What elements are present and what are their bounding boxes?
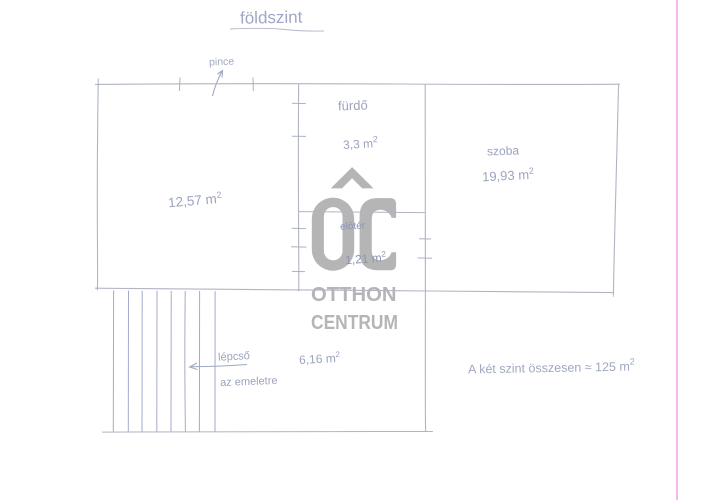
svg-text:19,93 m2: 19,93 m2 [482,166,535,185]
svg-text:fürdő: fürdő [338,97,368,113]
svg-text:szoba: szoba [487,143,520,158]
svg-text:CENTRUM: CENTRUM [311,311,398,334]
svg-text:A két szint összesen ≈ 125 m2: A két szint összesen ≈ 125 m2 [468,357,635,377]
svg-text:12,57 m2: 12,57 m2 [167,190,222,211]
svg-text:földszint: földszint [240,8,303,28]
svg-text:lépcső: lépcső [218,350,250,364]
svg-text:előtér: előtér [340,220,366,232]
svg-text:OTTHON: OTTHON [311,284,397,306]
svg-text:3,3 m2: 3,3 m2 [343,134,379,152]
svg-text:6,16 m2: 6,16 m2 [299,350,341,367]
svg-text:az emeletre: az emeletre [220,375,278,389]
svg-text:pince: pince [209,56,235,69]
svg-text:1,21 m2: 1,21 m2 [345,249,388,267]
